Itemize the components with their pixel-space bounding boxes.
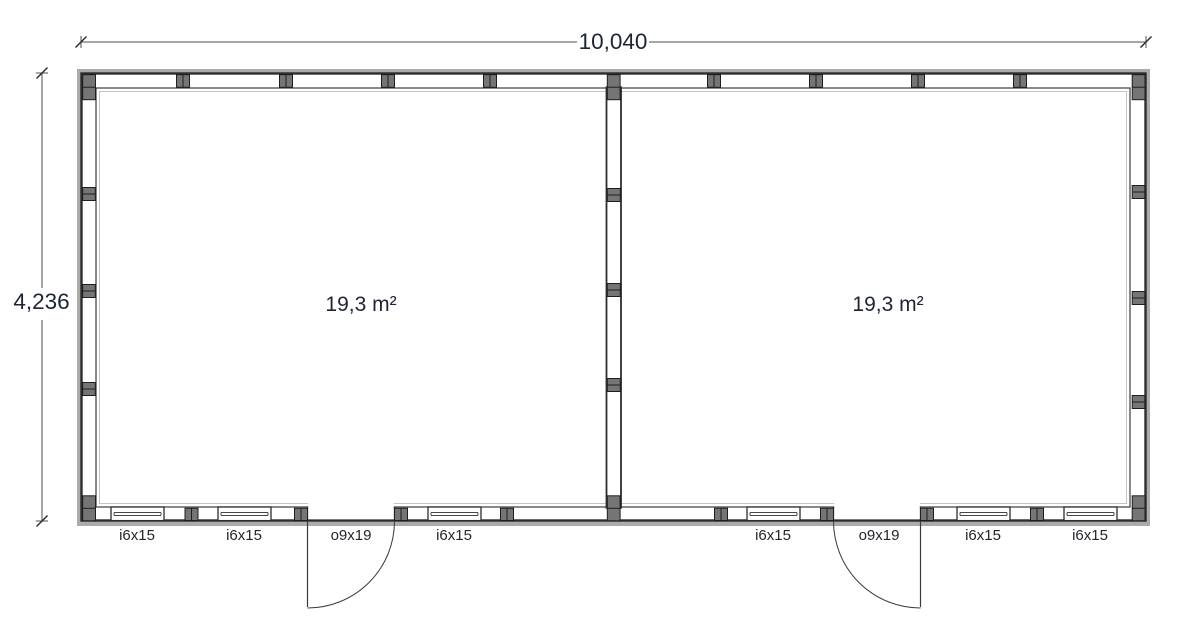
room-area-label-left: 19,3 m² xyxy=(325,293,396,316)
door-opening xyxy=(308,503,394,520)
door-left xyxy=(308,503,395,609)
window xyxy=(218,507,271,521)
window xyxy=(957,507,1010,521)
opening-label: i6x15 xyxy=(119,527,155,544)
room-area-label-right: 19,3 m² xyxy=(852,293,923,316)
window xyxy=(428,507,481,521)
floor-plan-drawing: 10,040 4,236 i6x15i6x15o9x19i6x15i6x15o9… xyxy=(0,0,1181,631)
opening-labels: i6x15i6x15o9x19i6x15i6x15o9x19i6x15i6x15 xyxy=(119,527,1108,544)
door-right xyxy=(834,503,921,609)
width-dimension: 10,040 xyxy=(76,29,1152,54)
width-dimension-label: 10,040 xyxy=(579,29,648,54)
window xyxy=(1064,507,1117,521)
opening-label: i6x15 xyxy=(1072,527,1108,544)
opening-label: o9x19 xyxy=(859,527,900,544)
opening-label: o9x19 xyxy=(331,527,372,544)
height-dimension-label: 4,236 xyxy=(13,289,69,314)
opening-label: i6x15 xyxy=(965,527,1001,544)
partition-wall xyxy=(607,87,622,508)
door-opening xyxy=(834,503,920,520)
height-dimension: 4,236 xyxy=(13,68,69,527)
opening-label: i6x15 xyxy=(755,527,791,544)
floor-plan-canvas: 10,040 4,236 i6x15i6x15o9x19i6x15i6x15o9… xyxy=(0,0,1181,631)
building-shell xyxy=(77,69,1150,526)
window xyxy=(111,507,164,521)
opening-label: i6x15 xyxy=(436,527,472,544)
window xyxy=(747,507,800,521)
opening-label: i6x15 xyxy=(226,527,262,544)
